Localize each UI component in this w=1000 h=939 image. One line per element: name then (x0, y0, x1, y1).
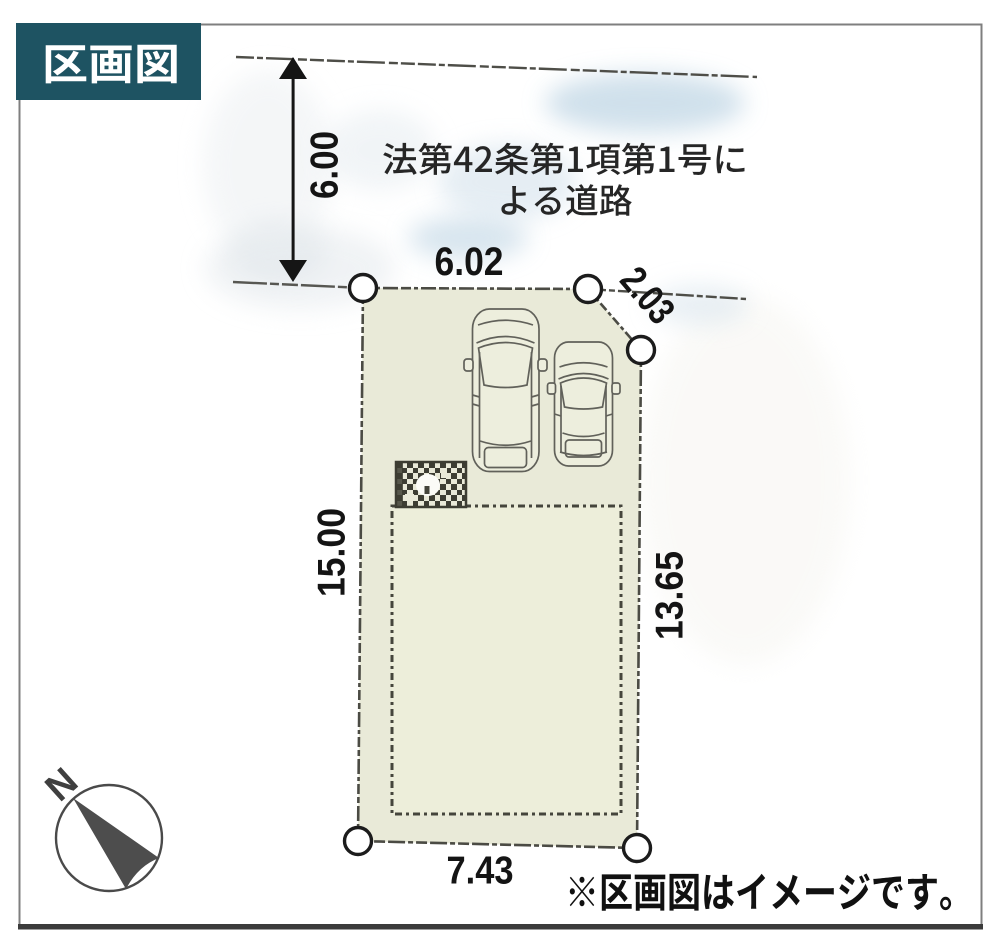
svg-text:13.65: 13.65 (649, 551, 692, 640)
svg-text:15.00: 15.00 (311, 508, 354, 597)
svg-text:7.43: 7.43 (447, 850, 514, 893)
svg-text:6.00: 6.00 (304, 131, 347, 199)
svg-text:6.02: 6.02 (435, 240, 504, 284)
